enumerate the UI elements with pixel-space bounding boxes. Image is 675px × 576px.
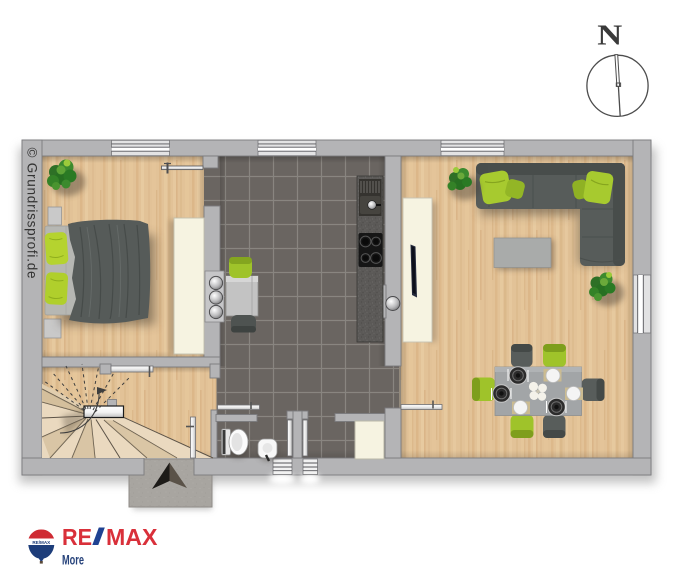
svg-text:© Grundrissprofi.de: © Grundrissprofi.de [25, 148, 40, 279]
svg-text:MAX: MAX [106, 524, 158, 550]
svg-text:More: More [62, 552, 84, 567]
svg-text:N: N [597, 20, 622, 51]
svg-text:RE/MAX: RE/MAX [32, 540, 51, 545]
svg-text:RE: RE [62, 524, 92, 550]
